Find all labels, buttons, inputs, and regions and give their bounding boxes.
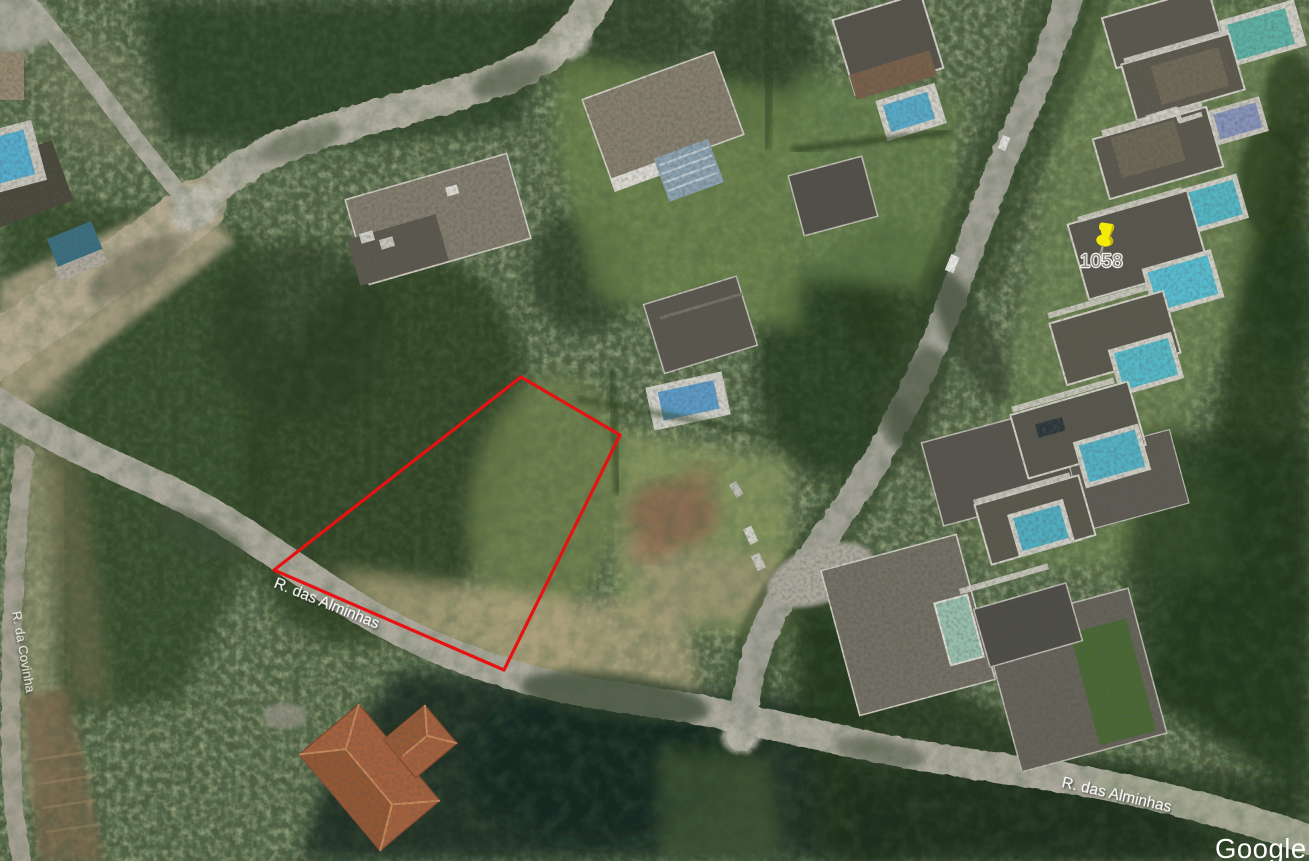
svg-text:1058: 1058 <box>1080 250 1123 271</box>
svg-text:Google E: Google E <box>1215 833 1309 861</box>
